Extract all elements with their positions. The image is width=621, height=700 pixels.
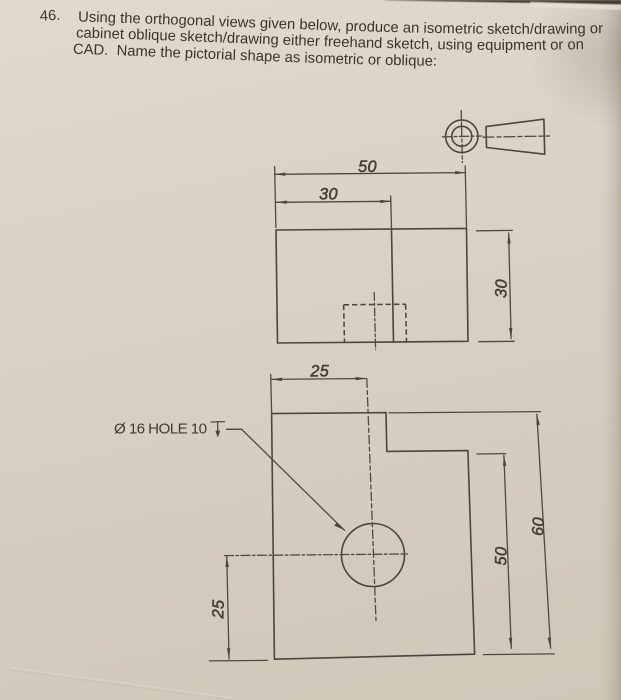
svg-text:50: 50: [492, 546, 511, 565]
svg-text:46.: 46.: [39, 8, 60, 25]
svg-text:30: 30: [492, 279, 510, 298]
svg-text:Ø 16 HOLE 10: Ø 16 HOLE 10: [114, 421, 207, 438]
svg-text:50: 50: [358, 158, 377, 176]
svg-text:25: 25: [209, 599, 228, 620]
svg-text:60: 60: [529, 517, 548, 537]
svg-text:25: 25: [309, 363, 329, 381]
svg-text:30: 30: [319, 185, 338, 203]
